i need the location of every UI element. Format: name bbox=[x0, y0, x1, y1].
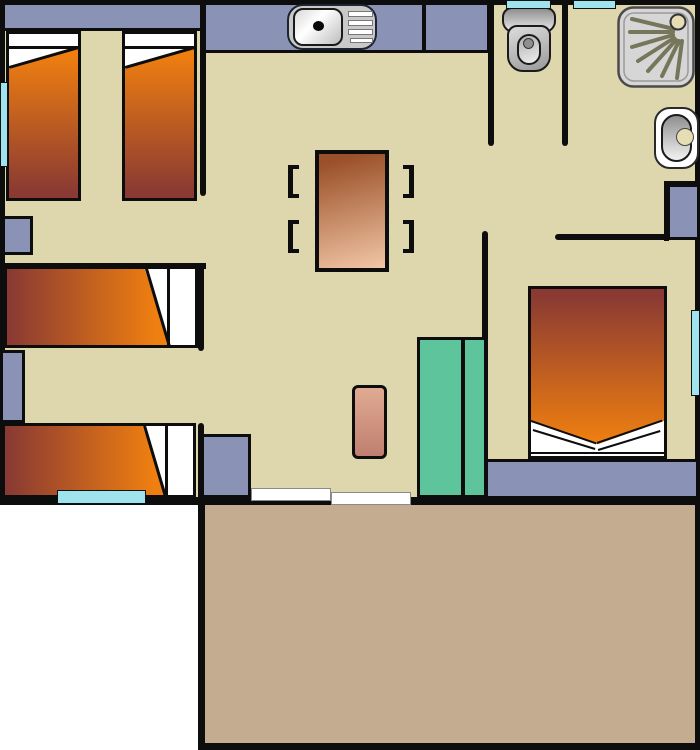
window-bedroom-double-right bbox=[691, 310, 700, 396]
sink-drain-icon bbox=[313, 21, 324, 31]
chair-bracket bbox=[288, 220, 299, 253]
corner-cupboard bbox=[667, 184, 700, 240]
double-bed bbox=[528, 286, 667, 459]
toilet-flush-icon bbox=[523, 38, 534, 49]
window-left-wall bbox=[0, 82, 8, 167]
sliding-door-panel-right bbox=[331, 492, 411, 505]
wardrobe-divider bbox=[461, 337, 465, 498]
chair-bracket bbox=[288, 165, 299, 198]
sink-drainer-bar bbox=[348, 29, 373, 35]
single-bed-3 bbox=[4, 266, 198, 348]
wardrobe-teal bbox=[417, 337, 487, 498]
dining-table bbox=[315, 150, 389, 272]
shower-tray bbox=[617, 6, 695, 88]
wardrobe-strip bbox=[2, 2, 203, 31]
wall-toilet-shower-divider bbox=[562, 0, 568, 146]
rug bbox=[352, 385, 387, 459]
floor-plan bbox=[0, 0, 700, 750]
sink-drainer-bar bbox=[348, 11, 373, 17]
single-bed-2 bbox=[122, 31, 197, 201]
washbasin-drain-icon bbox=[676, 128, 694, 146]
window-shower-top bbox=[573, 0, 616, 9]
chair-bracket bbox=[403, 165, 414, 198]
single-bed-1 bbox=[6, 31, 81, 201]
sink-drainer-bar bbox=[350, 38, 373, 43]
wall-twin-room-divider bbox=[200, 30, 206, 196]
wall-terrace-bottom bbox=[198, 743, 700, 750]
sink-drainer-bar bbox=[348, 20, 373, 26]
window-toilet-top bbox=[506, 0, 551, 9]
single-bed-4 bbox=[2, 423, 196, 498]
wall-bedroom-single-right-upper bbox=[198, 263, 204, 351]
headboard-shelf bbox=[485, 459, 699, 499]
terrace-floor bbox=[198, 497, 700, 750]
sliding-door-panel-left bbox=[251, 488, 331, 501]
window-bottom-wall bbox=[57, 490, 146, 504]
cabinet bbox=[201, 434, 251, 498]
counter-divider bbox=[422, 4, 426, 52]
nightstand-a bbox=[2, 216, 33, 255]
nightstand-b bbox=[0, 350, 25, 423]
wall-terrace-left bbox=[198, 497, 205, 750]
chair-bracket bbox=[403, 220, 414, 253]
